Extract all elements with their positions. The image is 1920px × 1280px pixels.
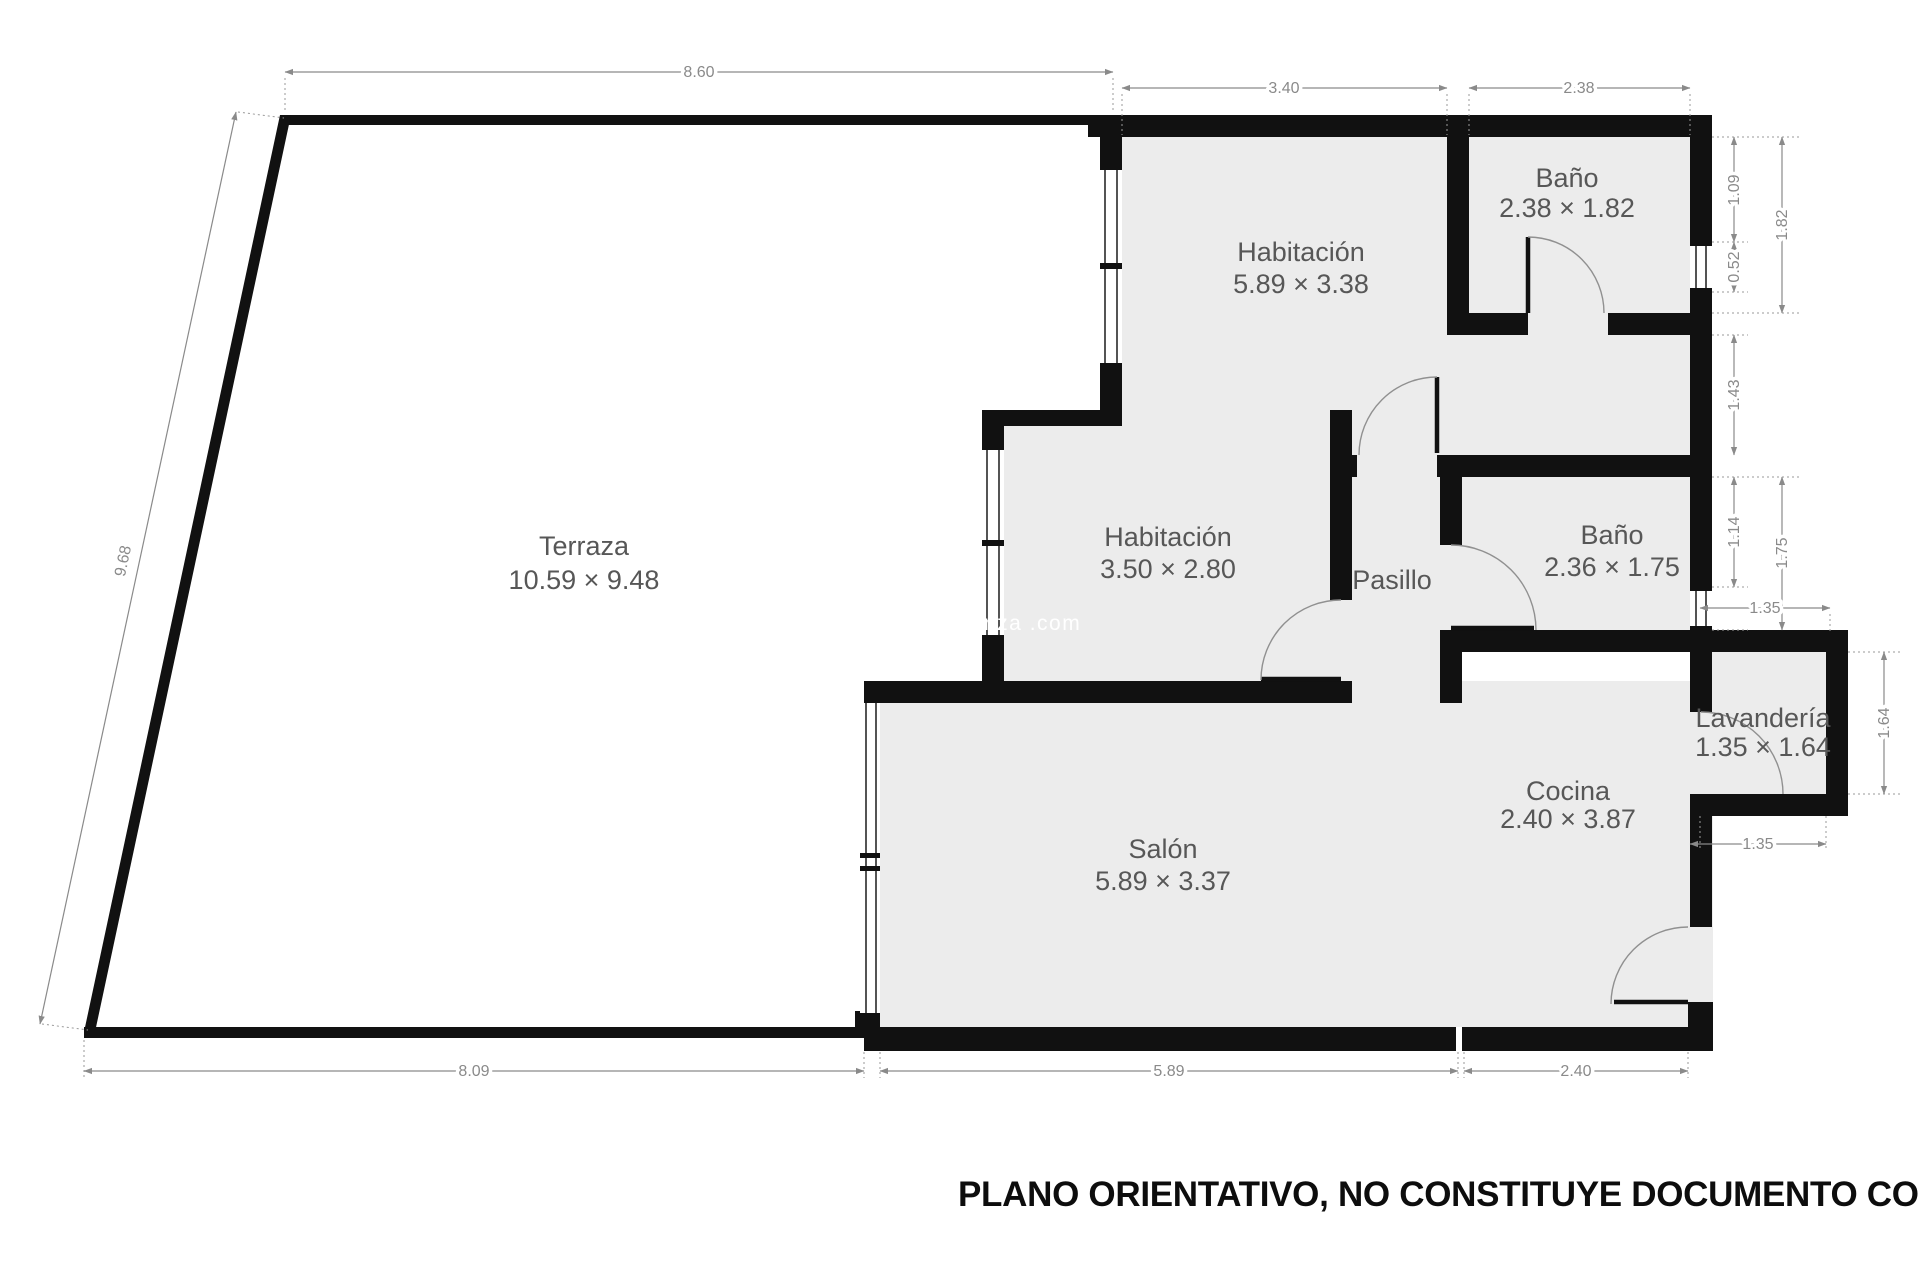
room-label-lavanderia: Lavandería (1695, 703, 1831, 733)
wall-joint-gap (1456, 1027, 1462, 1051)
wall-segment (280, 115, 1090, 125)
wall-segment (1688, 1002, 1713, 1051)
room-size-cocina: 2.40 × 3.87 (1500, 804, 1636, 834)
window-mullion (1100, 263, 1122, 269)
wall-segment (1437, 455, 1690, 477)
wall-segment (1690, 794, 1848, 816)
disclaimer-text: PLANO ORIENTATIVO, NO CONSTITUYE DOCUMEN… (958, 1175, 1920, 1214)
window-frame (1690, 288, 1712, 292)
watermark-text: nza .com (984, 612, 1081, 635)
room-label-salon: Salón (1128, 834, 1197, 864)
room-label-pasillo: Pasillo (1352, 565, 1432, 595)
room-label-habitacion2: Habitación (1104, 522, 1232, 552)
wall-segment (1608, 313, 1690, 335)
dim-value: 1.35 (1742, 836, 1773, 853)
room-size-bano2: 2.36 × 1.75 (1544, 552, 1680, 582)
floorplan-canvas: 8.60 3.40 2.38 1.09 0.52 1.82 1.43 1.14 … (0, 0, 1920, 1280)
wall-segment (864, 681, 1352, 703)
dim-value: 5.89 (1153, 1063, 1184, 1080)
wall-segment (1690, 816, 1712, 927)
wall-segment (1330, 455, 1357, 477)
wall-segment (1447, 313, 1528, 335)
wall-segment (1330, 410, 1352, 600)
window-salon-terrace (860, 703, 880, 1013)
room-label-cocina: Cocina (1526, 776, 1611, 806)
window-mullion (860, 866, 880, 871)
wall-segment (1088, 115, 1712, 137)
room-size-bano1: 2.38 × 1.82 (1499, 193, 1635, 223)
window-habitacion1-west (1100, 170, 1122, 363)
wall-segment (1447, 137, 1469, 335)
room-area-salon-cocina (864, 681, 1713, 1051)
wall-segment (864, 1027, 1713, 1051)
window-frame (1690, 242, 1712, 246)
dim-value: 1.09 (1726, 174, 1743, 205)
room-label-terraza: Terraza (539, 531, 630, 561)
dim-value: 1.14 (1726, 516, 1743, 547)
wall-segment (1100, 115, 1122, 170)
room-label-bano2: Baño (1580, 520, 1643, 550)
wall-segment (1440, 630, 1848, 652)
window-frame (1690, 587, 1712, 591)
dim-value: 1.75 (1774, 537, 1791, 568)
dim-line-left-terraza (40, 112, 236, 1024)
dim-value: 1.35 (1749, 600, 1780, 617)
dim-value: 8.60 (683, 64, 714, 81)
room-label-habitacion1: Habitación (1237, 237, 1365, 267)
wall-segment (1440, 652, 1462, 703)
floorplan-page: 8.60 3.40 2.38 1.09 0.52 1.82 1.43 1.14 … (0, 0, 1920, 1280)
room-size-salon: 5.89 × 3.37 (1095, 866, 1231, 896)
dim-value: 2.40 (1560, 1063, 1591, 1080)
window-bano1-east (1690, 242, 1712, 292)
wall-segment (1690, 292, 1712, 587)
room-size-habitacion2: 3.50 × 2.80 (1100, 554, 1236, 584)
room-size-habitacion1: 5.89 × 3.38 (1233, 269, 1369, 299)
wall-segment (1690, 137, 1712, 242)
dim-value: 2.38 (1563, 80, 1594, 97)
window-mullion (860, 853, 880, 858)
dim-value: 9.68 (112, 544, 135, 578)
room-size-lavanderia: 1.35 × 1.64 (1695, 732, 1831, 762)
room-size-terraza: 10.59 × 9.48 (509, 565, 660, 595)
window-mullion (982, 540, 1004, 546)
wall-segment (84, 1027, 866, 1038)
wall-segment (1440, 477, 1462, 545)
room-label-bano1: Baño (1535, 163, 1598, 193)
dim-value: 1.64 (1876, 707, 1893, 738)
dim-value: 0.52 (1726, 251, 1743, 282)
window-frame (1690, 626, 1712, 630)
dim-value: 8.09 (458, 1063, 489, 1080)
wall-segment (982, 410, 1004, 450)
dim-value: 1.82 (1774, 209, 1791, 240)
wall-segment (855, 1011, 880, 1033)
dim-value: 1.43 (1726, 379, 1743, 410)
dim-value: 3.40 (1268, 80, 1299, 97)
window-habitacion2-west (982, 450, 1004, 635)
